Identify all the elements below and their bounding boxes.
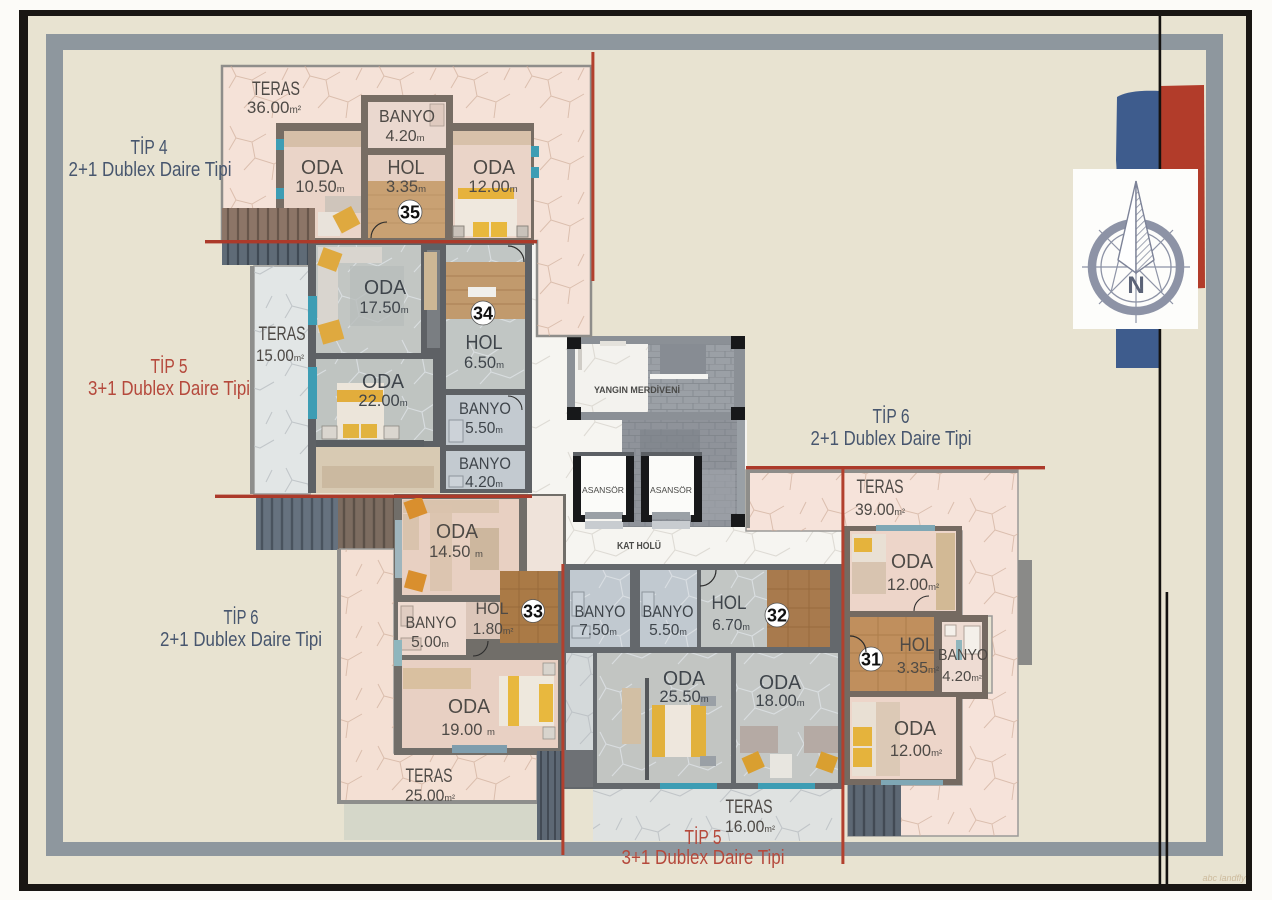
svg-text:ODA: ODA xyxy=(448,695,490,718)
svg-text:BANYO: BANYO xyxy=(643,602,694,621)
svg-text:ASANSÖR: ASANSÖR xyxy=(650,485,692,495)
svg-text:ASANSÖR: ASANSÖR xyxy=(582,485,624,495)
svg-text:ODA: ODA xyxy=(301,156,343,179)
svg-text:ODA: ODA xyxy=(364,276,406,299)
svg-text:ODA: ODA xyxy=(891,550,933,573)
svg-text:TİP 4: TİP 4 xyxy=(131,136,168,159)
svg-text:2+1 Dublex Daire Tipi: 2+1 Dublex Daire Tipi xyxy=(160,629,322,651)
svg-text:HOL: HOL xyxy=(466,331,503,354)
svg-text:TİP 5: TİP 5 xyxy=(151,355,188,378)
svg-text:BANYO: BANYO xyxy=(379,106,435,126)
svg-text:HOL: HOL xyxy=(712,593,747,614)
svg-text:TİP 6: TİP 6 xyxy=(873,405,910,428)
svg-text:BANYO: BANYO xyxy=(406,613,457,632)
svg-text:ODA: ODA xyxy=(663,667,705,690)
svg-text:3+1 Dublex Daire Tipi: 3+1 Dublex Daire Tipi xyxy=(622,847,785,869)
svg-text:HOL: HOL xyxy=(900,635,935,656)
svg-text:2+1 Dublex Daire Tipi: 2+1 Dublex Daire Tipi xyxy=(69,159,232,181)
svg-text:31: 31 xyxy=(861,650,881,670)
svg-text:33: 33 xyxy=(523,602,543,622)
svg-text:ODA: ODA xyxy=(436,520,478,543)
svg-text:19.00 m: 19.00 m xyxy=(441,721,495,739)
svg-text:BANYO: BANYO xyxy=(459,399,511,418)
svg-text:TERAS: TERAS xyxy=(857,477,904,498)
svg-text:ODA: ODA xyxy=(894,717,936,740)
svg-text:TERAS: TERAS xyxy=(259,324,306,345)
svg-text:TERAS: TERAS xyxy=(726,797,773,818)
svg-text:HOL: HOL xyxy=(388,156,425,179)
svg-text:BANYO: BANYO xyxy=(938,647,988,664)
svg-text:KAT HOLÜ: KAT HOLÜ xyxy=(617,539,661,552)
svg-text:abc landfly: abc landfly xyxy=(1202,873,1246,883)
svg-text:2+1 Dublex Daire Tipi: 2+1 Dublex Daire Tipi xyxy=(811,428,972,450)
svg-text:BANYO: BANYO xyxy=(459,454,511,473)
svg-text:TERAS: TERAS xyxy=(406,766,453,787)
svg-text:ODA: ODA xyxy=(362,370,404,393)
svg-text:32: 32 xyxy=(767,606,787,626)
svg-text:14.50 m: 14.50 m xyxy=(429,543,483,561)
svg-text:35: 35 xyxy=(400,203,420,223)
svg-text:HOL: HOL xyxy=(476,599,509,618)
svg-text:TİP 5: TİP 5 xyxy=(685,826,722,849)
svg-text:3+1 Dublex Daire Tipi: 3+1 Dublex Daire Tipi xyxy=(88,378,250,400)
svg-text:N: N xyxy=(1127,272,1144,299)
svg-text:TERAS: TERAS xyxy=(252,79,300,100)
svg-text:YANGIN MERDİVENİ: YANGIN MERDİVENİ xyxy=(594,385,680,395)
svg-text:ODA: ODA xyxy=(473,156,515,179)
svg-text:ODA: ODA xyxy=(759,671,801,694)
svg-text:BANYO: BANYO xyxy=(575,602,626,621)
svg-text:34: 34 xyxy=(473,304,493,324)
svg-text:TİP 6: TİP 6 xyxy=(224,606,259,629)
